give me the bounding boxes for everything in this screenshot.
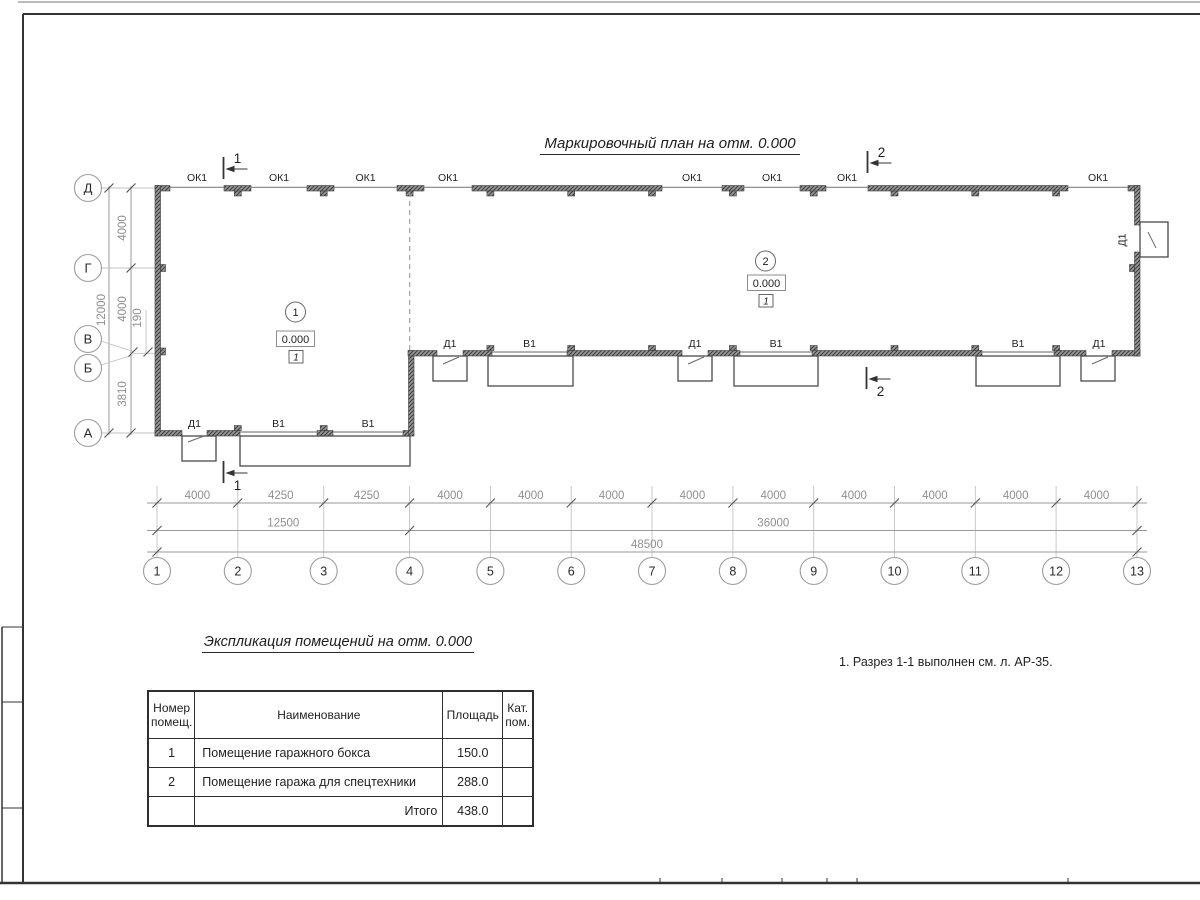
row-axis-label: Г: [84, 261, 91, 276]
pilaster: [568, 346, 575, 351]
room-area-cell: 150.0: [443, 739, 503, 768]
dim-label: 4000: [117, 215, 129, 241]
floor-type-label: 1: [763, 297, 769, 308]
wall-segment: [207, 431, 240, 437]
room-number-cell: 1: [148, 739, 195, 768]
axis-leader: [101, 355, 133, 365]
room-schedule-table: Номер помещ. Наименование Площадь Кат. п…: [147, 690, 534, 827]
column-axis-label: 8: [729, 565, 736, 579]
column-axis-label: 1: [154, 565, 161, 579]
room-schedule-title-text: Экспликация помещений на отм. 0.000: [202, 634, 474, 653]
total-area-cell: 438.0: [443, 797, 503, 827]
pilaster: [891, 346, 898, 351]
gate-mark-label: В1: [523, 338, 536, 350]
wall-segment: [408, 351, 437, 357]
wall-segment: [868, 186, 1068, 192]
door-mark-label: Д1: [188, 418, 201, 430]
porch-outline: [433, 356, 467, 381]
pilaster: [320, 191, 327, 196]
column-axis-label: 11: [969, 565, 982, 579]
window-mark-label: ОК1: [762, 172, 782, 184]
row-axis-label: Б: [84, 361, 93, 376]
door-swing: [688, 357, 704, 364]
porch-outline: [1081, 356, 1115, 381]
pilaster: [161, 348, 166, 355]
wall-segment: [812, 351, 982, 357]
table-header-row: Номер помещ. Наименование Площадь Кат. п…: [148, 691, 533, 739]
elevation-label: 0.000: [282, 334, 310, 346]
dim-label: 4000: [761, 490, 787, 502]
wall-segment: [567, 351, 682, 357]
row-axis-label: В: [84, 332, 93, 347]
door-mark-label: Д1: [689, 338, 702, 350]
pilaster: [810, 191, 817, 196]
pilaster: [810, 346, 817, 351]
dim-label: 4000: [117, 296, 129, 322]
pilaster: [972, 191, 979, 196]
porch-outline: [678, 356, 712, 381]
vestibule-outline: [1140, 222, 1168, 257]
dim-label: 4250: [354, 490, 380, 502]
wall-segment: [800, 186, 826, 192]
room-number-label: 2: [762, 256, 768, 268]
dim-label: 4000: [680, 490, 706, 502]
room-number-label: 1: [292, 307, 298, 319]
pilaster: [320, 426, 327, 431]
dim-label: 4000: [841, 490, 867, 502]
row-axis-label: Д: [84, 181, 93, 196]
wall-segment: [155, 186, 161, 437]
row-axis-label: А: [84, 426, 93, 441]
porch-outline: [182, 436, 216, 461]
pilaster: [729, 346, 736, 351]
pilaster: [972, 346, 979, 351]
room-category-cell: [503, 739, 533, 768]
elevation-label: 0.000: [753, 278, 781, 290]
gate-mark-label: В1: [362, 418, 375, 430]
door-swing: [188, 436, 204, 442]
pilaster: [649, 346, 656, 351]
wall-segment: [317, 431, 333, 437]
pilaster: [1130, 265, 1135, 272]
door-swing: [1148, 232, 1156, 248]
dim-label: 3810: [117, 381, 129, 407]
pilaster: [1053, 346, 1060, 351]
wall-segment: [155, 431, 182, 437]
col-header-category: Кат. пом.: [503, 691, 533, 739]
table-row: 2 Помещение гаража для спецтехники 288.0: [148, 768, 533, 797]
pilaster: [568, 191, 575, 196]
window-mark-label: ОК1: [187, 172, 207, 184]
total-label-cell: Итого: [195, 797, 443, 827]
door-swing: [443, 357, 459, 364]
dim-label: 4000: [599, 490, 625, 502]
door-swing: [1092, 357, 1108, 364]
wall-segment: [463, 351, 492, 357]
section-arrowhead: [869, 376, 878, 383]
section-mark-label: 1: [234, 151, 242, 166]
pilaster: [891, 191, 898, 196]
column-axis-label: 7: [649, 565, 656, 579]
column-axis-label: 6: [568, 565, 575, 579]
dim-label: 4000: [1084, 490, 1110, 502]
wall-segment: [722, 186, 744, 192]
gate-mark-label: В1: [272, 418, 285, 430]
wall-segment: [224, 186, 251, 192]
room-number-cell: 2: [148, 768, 195, 797]
gate-mark-label: В1: [1012, 338, 1025, 350]
col-header-area: Площадь: [443, 691, 503, 739]
column-axis-label: 13: [1130, 565, 1144, 579]
note-text: 1. Разрез 1-1 выполнен см. л. АР-35.: [839, 655, 1053, 669]
pilaster: [161, 265, 166, 272]
col-header-name: Наименование: [195, 691, 443, 739]
window-mark-label: ОК1: [837, 172, 857, 184]
section-arrowhead: [226, 470, 235, 477]
pilaster: [487, 346, 494, 351]
wall-segment: [1054, 351, 1086, 357]
table-row: 1 Помещение гаражного бокса 150.0: [148, 739, 533, 768]
pilaster: [729, 191, 736, 196]
ramp-outline: [488, 356, 573, 386]
dim-label: 4000: [518, 490, 544, 502]
col-header-room-number: Номер помещ.: [148, 691, 195, 739]
room-name-cell: Помещение гаражного бокса: [195, 739, 443, 768]
pilaster: [487, 191, 494, 196]
window-mark-label: ОК1: [269, 172, 289, 184]
empty-cell: [148, 797, 195, 827]
plan-title-text: Маркировочный план на отм. 0.000: [540, 135, 799, 155]
floor-type-label: 1: [293, 353, 299, 364]
column-axis-label: 9: [810, 565, 817, 579]
section-mark-label: 2: [878, 145, 886, 160]
dim-tick: [144, 348, 153, 357]
drawing-sheet: 4000425042504000400040004000400040004000…: [0, 0, 1200, 900]
pilaster: [234, 426, 241, 431]
column-axis-label: 12: [1049, 565, 1063, 579]
wall-segment: [409, 351, 415, 437]
wall-segment: [1135, 252, 1141, 356]
room-name-cell: Помещение гаража для спецтехники: [195, 768, 443, 797]
room-schedule-title: Экспликация помещений на отм. 0.000: [178, 634, 498, 650]
ramp-outline: [976, 356, 1060, 386]
wall-segment: [1135, 186, 1141, 226]
ramp-outline: [240, 436, 410, 466]
wall-segment: [708, 351, 740, 357]
wall-segment: [472, 186, 662, 192]
window-mark-label: ОК1: [1088, 172, 1108, 184]
dim-label: 4000: [922, 490, 948, 502]
plan-title: Маркировочный план на отм. 0.000: [505, 135, 835, 152]
section-mark-label: 2: [877, 384, 885, 399]
dim-label: 12000: [96, 294, 108, 326]
wall-segment: [397, 186, 424, 192]
door-mark-label: Д1: [1093, 338, 1106, 350]
room-area-cell: 288.0: [443, 768, 503, 797]
room-category-cell: [503, 768, 533, 797]
pilaster: [649, 191, 656, 196]
column-axis-label: 4: [406, 565, 413, 579]
section-arrowhead: [870, 160, 879, 167]
window-mark-label: ОК1: [355, 172, 375, 184]
dim-label: 4000: [437, 490, 463, 502]
window-mark-label: ОК1: [438, 172, 458, 184]
wall-segment: [307, 186, 334, 192]
empty-cell: [503, 797, 533, 827]
gate-mark-label: В1: [770, 338, 783, 350]
dim-label: 4000: [1003, 490, 1029, 502]
section-mark-label: 1: [234, 478, 242, 493]
window-mark-label: ОК1: [682, 172, 702, 184]
pilaster: [1053, 191, 1060, 196]
section-arrowhead: [226, 166, 235, 173]
dim-label: 4000: [185, 490, 211, 502]
column-axis-label: 2: [234, 565, 241, 579]
table-total-row: Итого 438.0: [148, 797, 533, 827]
door-mark-label: Д1: [444, 338, 457, 350]
dim-label: 4250: [268, 490, 294, 502]
dim-label: 36000: [757, 518, 789, 530]
pilaster: [234, 191, 241, 196]
dim-label: 48500: [631, 539, 663, 551]
column-axis-label: 3: [320, 565, 327, 579]
dim-label: 12500: [267, 518, 299, 530]
column-axis-label: 5: [487, 565, 494, 579]
column-axis-label: 10: [888, 565, 902, 579]
ramp-outline: [734, 356, 818, 386]
axis-leader: [101, 341, 133, 352]
door-mark-label: Д1: [1117, 233, 1129, 246]
dim-label: 190: [132, 308, 144, 327]
